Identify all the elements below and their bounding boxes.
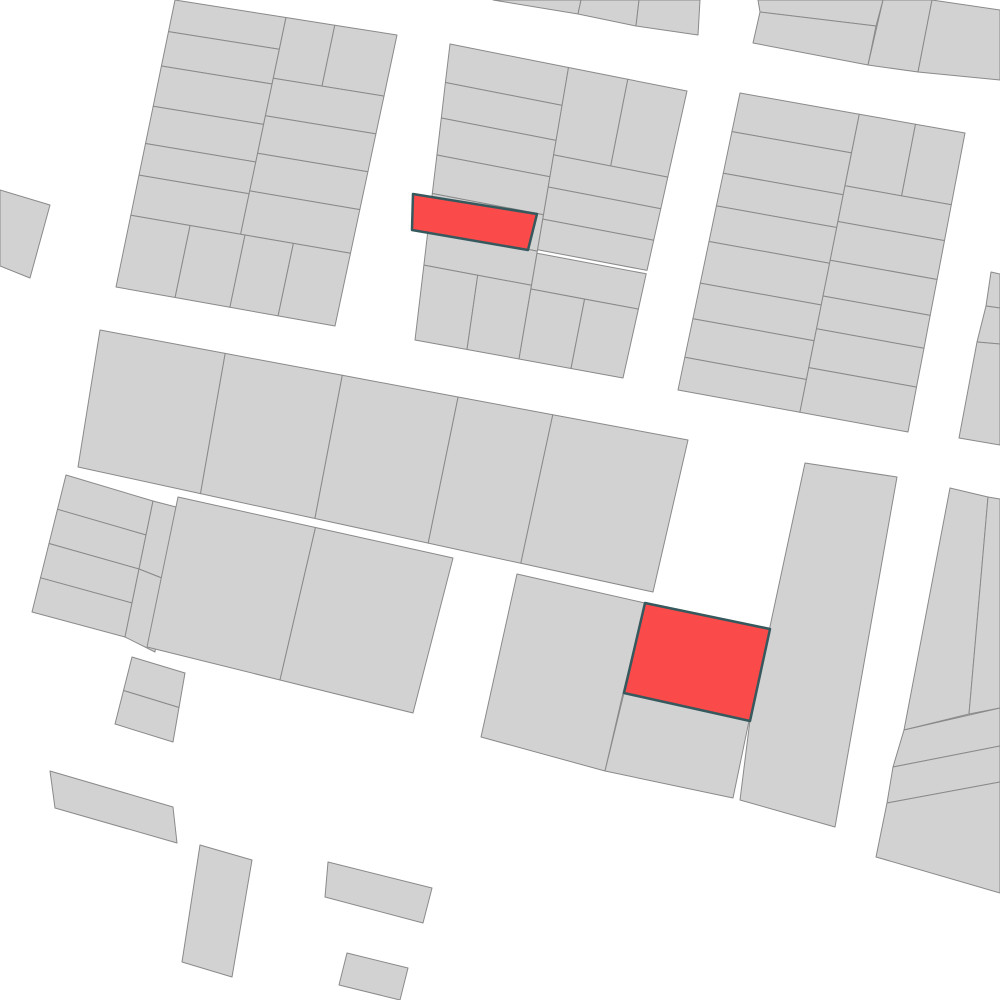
parcel-bottom-r4[interactable]: [339, 953, 408, 1000]
parcel-left-edge[interactable]: [0, 190, 50, 278]
parcel-right-sliver-c[interactable]: [959, 342, 1000, 445]
parcel-bottom-r3[interactable]: [325, 862, 432, 923]
parcel-bottom-r2[interactable]: [182, 845, 252, 977]
parcel-topright-d[interactable]: [918, 0, 1000, 80]
parcel-right-sliver-b[interactable]: [977, 306, 1000, 344]
block-top-left-parcel-8[interactable]: [322, 25, 397, 96]
parcel-top-strip-a[interactable]: [493, 0, 581, 14]
parcel-top-strip-b[interactable]: [578, 0, 639, 26]
parcel-bottom-r1[interactable]: [50, 771, 177, 843]
map-viewport: [0, 0, 1000, 1000]
parcel-map[interactable]: [0, 0, 1000, 1000]
block-top-middle-parcel-7[interactable]: [415, 265, 478, 349]
parcel-top-strip-c[interactable]: [636, 0, 700, 35]
block-middle-band-parcel-1[interactable]: [78, 330, 225, 494]
parcel-right-sliver-a[interactable]: [986, 272, 1000, 308]
